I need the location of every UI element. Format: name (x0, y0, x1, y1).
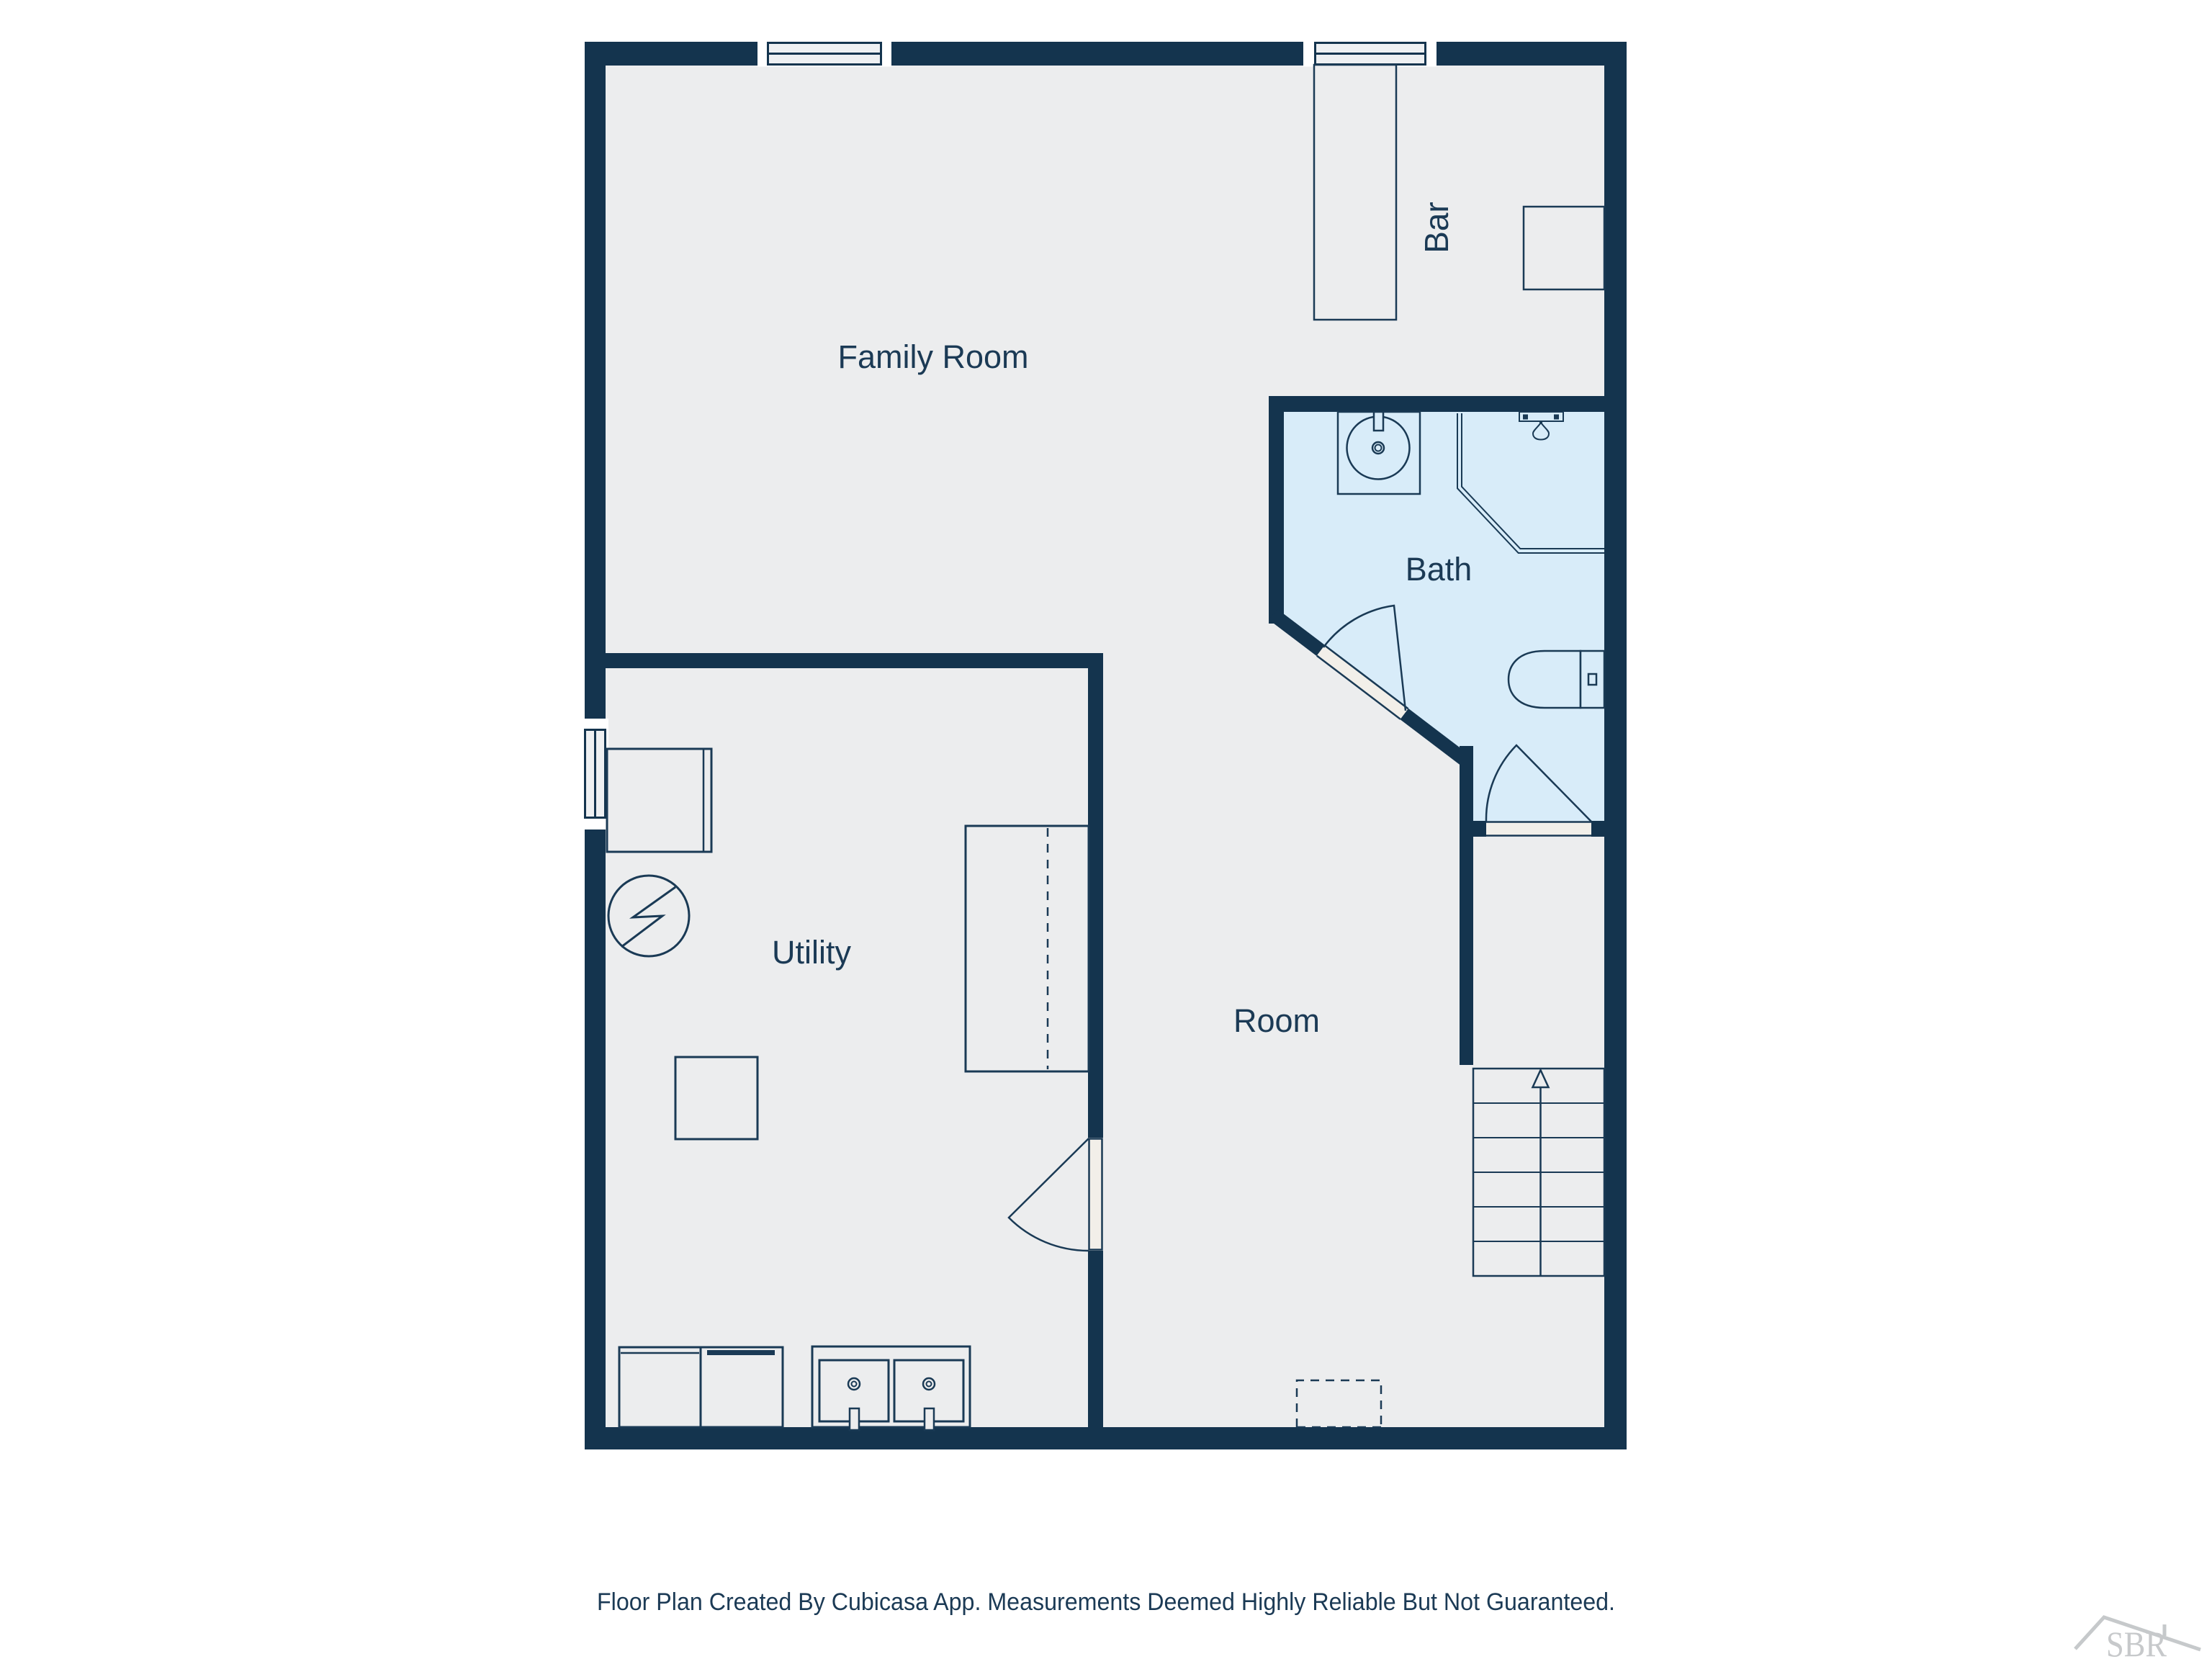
svg-text:Family Room: Family Room (837, 338, 1028, 375)
svg-text:Bath: Bath (1406, 551, 1473, 588)
svg-text:Utility: Utility (772, 934, 851, 971)
svg-text:SBR: SBR (2106, 1624, 2167, 1659)
svg-text:Room: Room (1233, 1002, 1320, 1039)
svg-text:Floor Plan Created By Cubicasa: Floor Plan Created By Cubicasa App. Meas… (597, 1588, 1615, 1616)
svg-text:Bar: Bar (1418, 202, 1455, 253)
